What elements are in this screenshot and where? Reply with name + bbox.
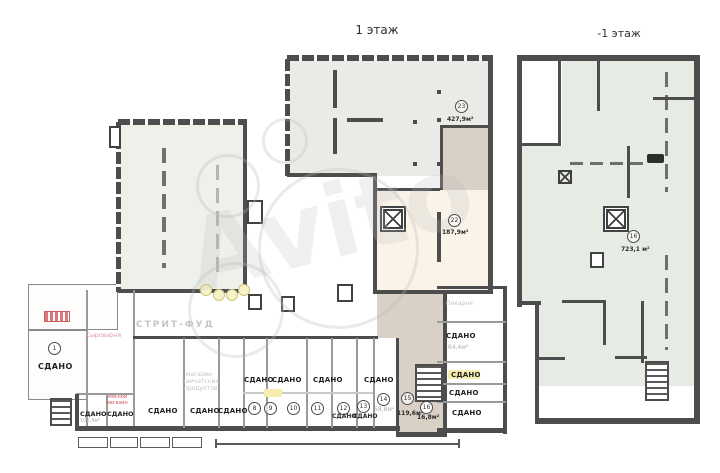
sofa-icon	[647, 154, 664, 163]
street-food-label: СТРИТ-ФУД	[136, 320, 215, 330]
wall	[75, 394, 79, 428]
room-fill	[539, 303, 695, 386]
elevator-icon	[606, 209, 626, 229]
wall	[440, 125, 493, 128]
wall	[133, 290, 135, 430]
stairs-icon	[645, 361, 669, 401]
floorplan-image: Avito 1 этаж -1 этаж 23 427,9м² 22 187,9…	[0, 0, 720, 473]
wall	[443, 290, 447, 437]
column-line	[570, 162, 648, 165]
kamchatka-shop-label: продуктов	[184, 385, 217, 392]
room-number-badge: 16	[420, 401, 433, 414]
rented-label: СДАНО	[244, 376, 274, 384]
room-number-badge: 22	[448, 214, 461, 227]
area-label: 16,8м²	[417, 414, 439, 421]
meat-shop-label: магазин	[106, 400, 128, 406]
wall	[597, 61, 600, 111]
wall	[306, 338, 308, 428]
wall	[437, 361, 506, 363]
room-number-badge: 14	[377, 393, 390, 406]
wall	[558, 61, 561, 146]
area-label: 58,8м²	[374, 406, 394, 413]
rented-label: СДАНО	[364, 376, 394, 384]
dimension-line	[215, 443, 460, 445]
rented-label: СДАНО	[218, 407, 248, 415]
area-label: 723,1 м²	[621, 246, 650, 253]
entrance-steps	[78, 437, 108, 448]
wall	[535, 418, 699, 424]
wall-niche	[109, 126, 121, 148]
rented-label: СДАНО	[107, 410, 134, 418]
rented-label: СДАНО	[449, 389, 479, 397]
wall	[627, 146, 630, 198]
wall	[333, 70, 337, 108]
dimension-tick	[215, 439, 217, 448]
area-label: 100,4м²	[80, 418, 100, 424]
wall	[522, 143, 561, 146]
room-number-badge: 10	[287, 402, 300, 415]
wall	[75, 426, 400, 431]
entrance-steps	[110, 437, 138, 448]
rented-label: СДАНО	[148, 407, 178, 415]
wall	[437, 428, 507, 433]
room-number-badge: 9	[264, 402, 277, 415]
rented-label: СДАНО	[452, 409, 482, 417]
kamchatka-shop-label: магазин	[186, 371, 212, 378]
column-line	[665, 255, 668, 350]
rented-label: СДАНО	[451, 371, 481, 379]
column	[437, 90, 441, 94]
wall	[437, 383, 506, 385]
wall	[437, 321, 506, 323]
annex-outline	[28, 284, 118, 330]
column-line	[162, 148, 166, 268]
highlight-chip	[264, 389, 282, 397]
kamchatka-shop-label: камчатских	[182, 378, 219, 385]
rented-label: СДАНО	[353, 413, 378, 420]
wall	[517, 55, 522, 307]
area-label: 427,9м²	[447, 116, 474, 123]
wall	[488, 59, 493, 294]
wall	[287, 55, 493, 61]
rented-label: СДАНО	[313, 376, 343, 384]
wall	[333, 118, 337, 154]
wall	[396, 338, 399, 437]
room-number-badge: 23	[455, 100, 468, 113]
floor1-title: 1 этаж	[347, 23, 407, 37]
wall	[86, 290, 88, 430]
tech-zone	[44, 311, 70, 322]
room-number-badge: 16	[627, 230, 640, 243]
wall	[517, 55, 700, 61]
rented-label: СДАНО	[190, 407, 220, 415]
dimension-tick	[458, 439, 460, 448]
watermark-circle	[262, 118, 308, 164]
wall	[503, 286, 507, 434]
rented-label: СДАНО	[38, 362, 73, 371]
room-number-badge: 11	[311, 402, 324, 415]
wall	[615, 356, 647, 359]
wall	[694, 55, 700, 424]
entrance-steps	[140, 437, 170, 448]
wall	[347, 118, 383, 122]
column	[437, 118, 441, 122]
room-fill	[522, 146, 562, 303]
area-label: 187,9м²	[442, 229, 469, 236]
wall	[641, 301, 644, 363]
room-number-badge: 1	[48, 342, 61, 355]
room-number-badge: 15	[401, 392, 414, 405]
room-number-badge: 13	[357, 400, 370, 413]
column	[413, 120, 417, 124]
wall	[437, 401, 506, 403]
wall	[535, 301, 539, 423]
bakery-label: Пекарня	[446, 300, 473, 307]
fixture-icon	[558, 170, 572, 184]
stairs-icon	[415, 364, 443, 402]
column-line	[665, 72, 668, 192]
rented-label: СДАНО	[80, 410, 107, 418]
cheese-shop-label: Сыроварня	[86, 332, 121, 339]
wall	[437, 286, 507, 289]
rented-label: СДАНО	[446, 332, 476, 340]
wall	[118, 119, 247, 125]
wall	[562, 300, 606, 303]
entrance-steps	[172, 437, 202, 448]
rented-label: СДАНО	[272, 376, 302, 384]
wall	[653, 97, 695, 100]
area-label: 64,4м²	[448, 344, 468, 351]
wall	[603, 301, 606, 345]
basement-title: -1 этаж	[589, 27, 649, 40]
wall	[539, 357, 565, 360]
wall-niche	[590, 252, 604, 268]
room-number-badge: 8	[248, 402, 261, 415]
wall	[243, 392, 373, 394]
stairs-icon	[50, 398, 72, 426]
